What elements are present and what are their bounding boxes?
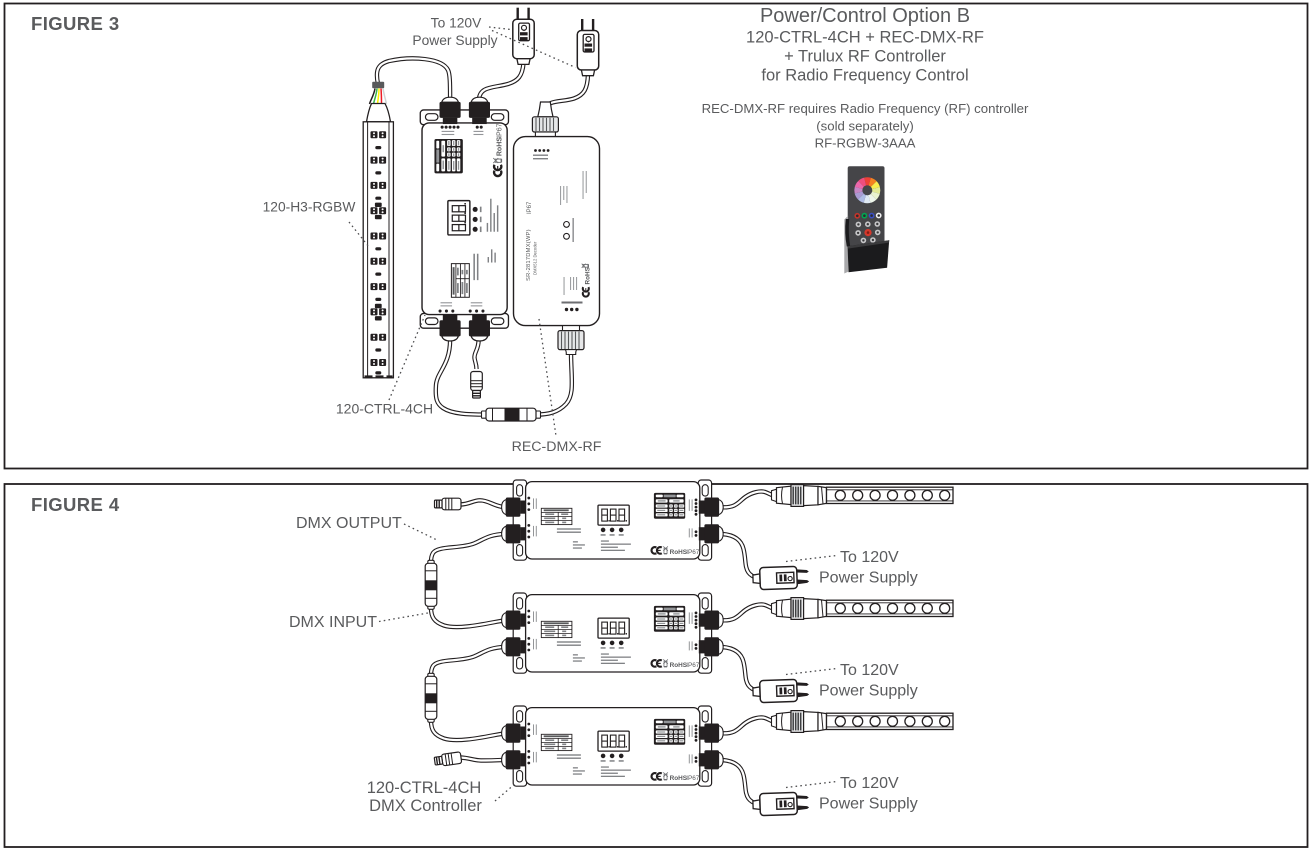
svg-text:DMX INPUT: DMX INPUT (289, 614, 377, 631)
svg-text:120-CTRL-4CH: 120-CTRL-4CH (367, 779, 482, 797)
svg-text:FIGURE 4: FIGURE 4 (31, 494, 120, 515)
svg-text:REC-DMX-RF requires Radio Freq: REC-DMX-RF requires Radio Frequency (RF)… (702, 101, 1029, 116)
svg-text:RoHS: RoHS (585, 266, 592, 284)
svg-text:120-CTRL-4CH + REC-DMX-RF: 120-CTRL-4CH + REC-DMX-RF (746, 29, 984, 47)
svg-text:(sold separately): (sold separately) (816, 119, 913, 134)
svg-text:DMX512 Decoder: DMX512 Decoder (533, 241, 538, 275)
svg-text:SR-2817DMX(WP): SR-2817DMX(WP) (526, 229, 532, 281)
svg-text:120-H3-RGBW: 120-H3-RGBW (263, 200, 356, 215)
svg-text:+ Trulux RF Controller: + Trulux RF Controller (784, 48, 946, 66)
svg-text:IP67: IP67 (527, 201, 533, 214)
svg-text:REC-DMX-RF: REC-DMX-RF (512, 439, 602, 455)
svg-text:120-CTRL-4CH: 120-CTRL-4CH (336, 401, 433, 417)
svg-text:Power/Control Option B: Power/Control Option B (760, 5, 970, 27)
svg-text:DMX Controller: DMX Controller (369, 797, 482, 815)
svg-text:Power Supply: Power Supply (412, 33, 497, 48)
svg-text:for Radio Frequency Control: for Radio Frequency Control (761, 67, 968, 85)
svg-text:FIGURE 3: FIGURE 3 (31, 13, 120, 34)
svg-text:To 120V: To 120V (431, 16, 482, 31)
svg-text:RF-RGBW-3AAA: RF-RGBW-3AAA (815, 136, 916, 151)
svg-text:DMX OUTPUT: DMX OUTPUT (296, 515, 402, 532)
